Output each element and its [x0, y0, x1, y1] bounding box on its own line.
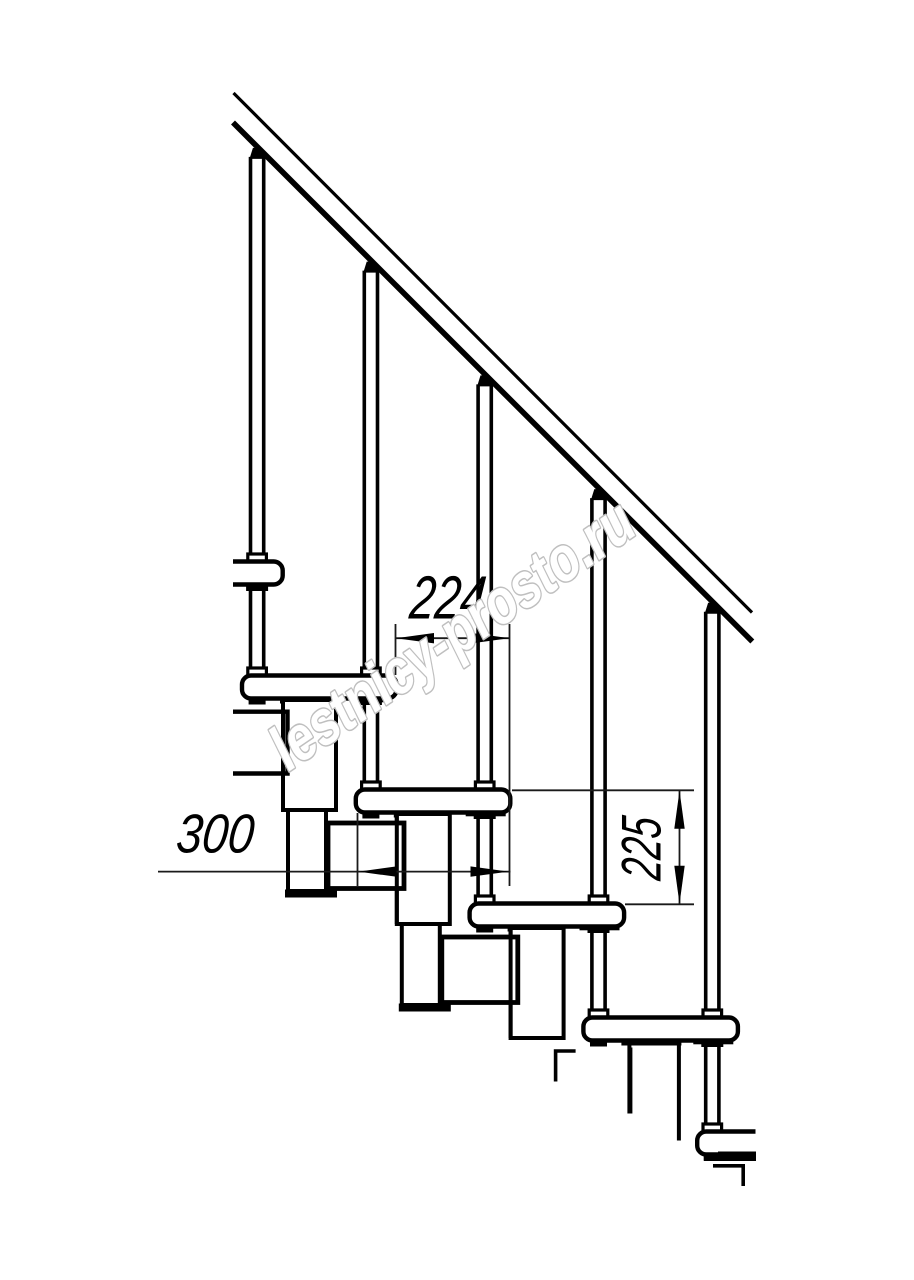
- svg-text:225: 225: [611, 813, 673, 883]
- svg-text:300: 300: [174, 803, 258, 865]
